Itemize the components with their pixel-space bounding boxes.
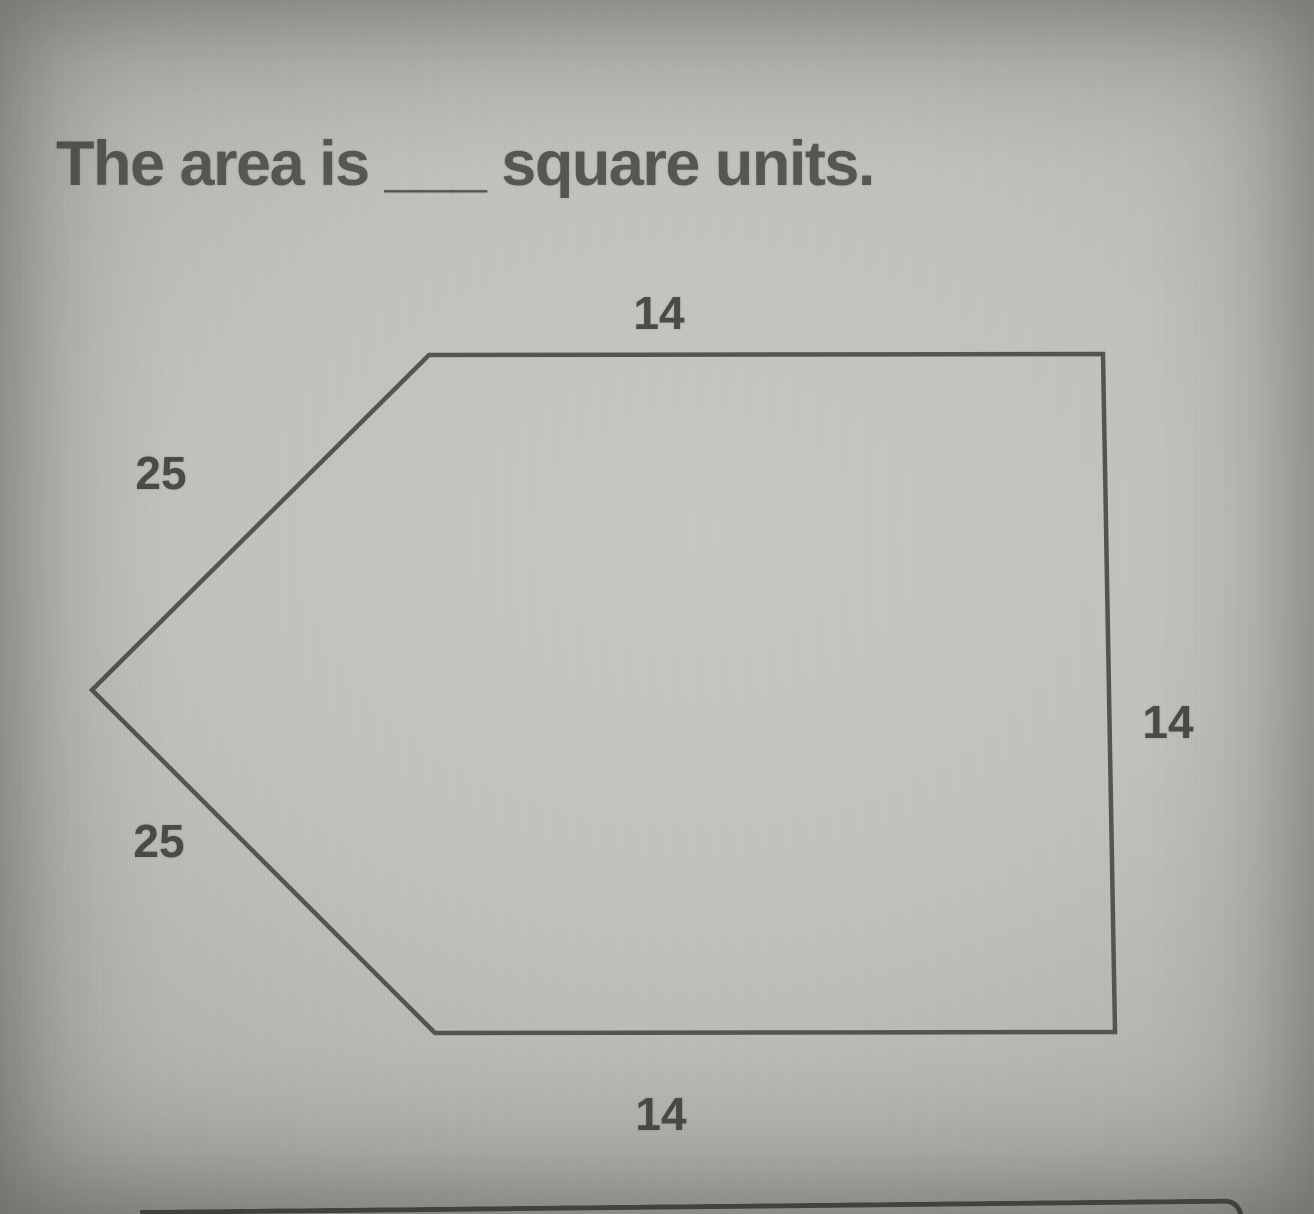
side-label-upper-left: 25 [135, 446, 186, 500]
side-label-top: 14 [633, 286, 684, 340]
side-label-right: 14 [1142, 695, 1193, 749]
side-label-bottom: 14 [635, 1087, 686, 1141]
screen-photo: The area is ___ square units. 14 25 25 1… [0, 0, 1314, 1214]
pentagon-outline [92, 354, 1115, 1033]
pentagon-figure [0, 0, 1314, 1214]
side-label-lower-left: 25 [133, 814, 184, 868]
